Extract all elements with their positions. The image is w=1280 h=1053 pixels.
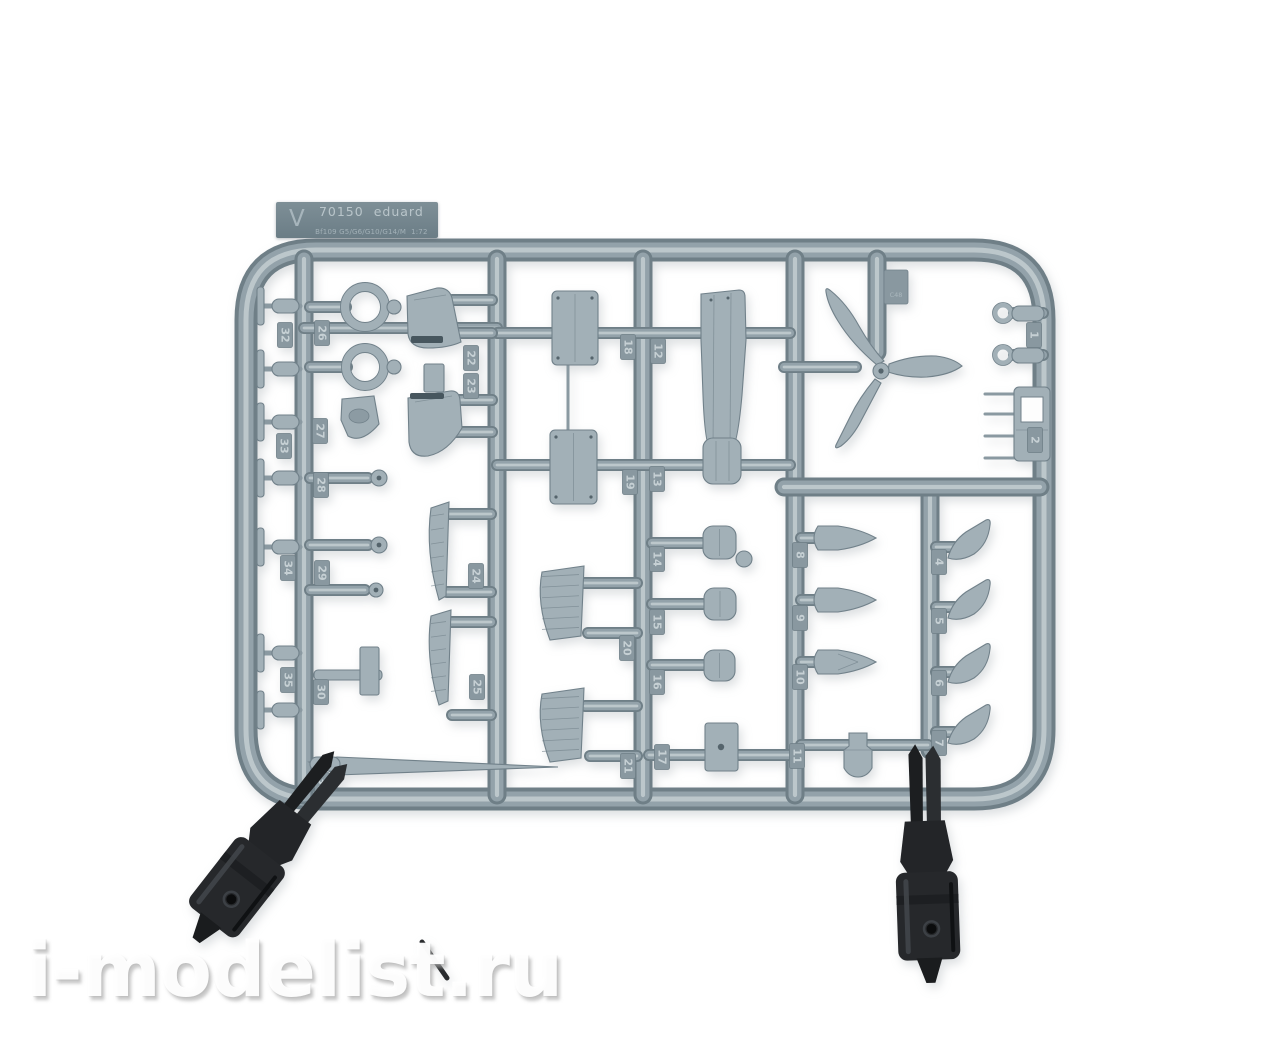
svg-text:35: 35 [282, 672, 295, 687]
brand-name: eduard [374, 204, 424, 219]
svg-text:6: 6 [933, 679, 946, 687]
part-number-tag: 33 [277, 434, 292, 459]
svg-text:9: 9 [794, 614, 807, 622]
part-number-tag: 8 [793, 543, 808, 568]
part-number-tag: 23 [464, 374, 479, 399]
svg-text:18: 18 [622, 339, 635, 354]
clip-right [891, 743, 961, 984]
part-number-tag: 34 [281, 556, 296, 581]
part-number-tag: 27 [313, 419, 328, 444]
part-number-tag: 16 [650, 670, 665, 695]
svg-text:19: 19 [624, 474, 637, 489]
part-number-tag: 4 [932, 550, 947, 575]
svg-text:21: 21 [622, 758, 635, 773]
part-mast-body [272, 362, 299, 376]
part-loop-body [1012, 348, 1044, 363]
part-number-tag: 22 [464, 346, 479, 371]
svg-text:30: 30 [315, 684, 328, 700]
svg-text:26: 26 [316, 325, 329, 341]
propeller-blade [888, 356, 962, 377]
part-loop [995, 305, 1011, 321]
sprue-label: V 70150eduard Bf109 G5/G6/G10/G14/M1:72 [276, 202, 438, 238]
sprue-label-text: 70150eduard Bf109 G5/G6/G10/G14/M1:72 [313, 202, 438, 239]
part-ball-end [387, 360, 401, 374]
part-cowl [701, 290, 746, 453]
svg-text:16: 16 [651, 674, 664, 690]
part-mast-body [272, 471, 299, 485]
part-number-tag: 20 [620, 636, 635, 661]
part-mast-body [272, 646, 299, 660]
part-mast-head [257, 403, 264, 441]
sprue: C483226273328342935303122232425181219131… [0, 0, 1280, 1053]
svg-text:4: 4 [933, 558, 946, 566]
svg-text:5: 5 [933, 617, 946, 625]
svg-text:23: 23 [465, 378, 478, 393]
part-spinner [814, 526, 876, 550]
part-slat [429, 610, 451, 705]
part-number-tag: 24 [469, 564, 484, 589]
part-mast-head [257, 350, 264, 388]
part-number-tag: 32 [278, 323, 293, 348]
part-spinner [814, 588, 876, 612]
part-number-tag: 21 [621, 754, 636, 779]
part-number-tag: 25 [470, 675, 485, 700]
svg-text:24: 24 [470, 568, 483, 584]
product-photo: C483226273328342935303122232425181219131… [0, 0, 1280, 1053]
svg-text:10: 10 [794, 669, 807, 685]
part-scoop [948, 705, 990, 745]
svg-text:15: 15 [651, 614, 664, 629]
part-step [360, 647, 379, 695]
part-loop [995, 347, 1011, 363]
svg-text:13: 13 [651, 471, 664, 486]
svg-text:25: 25 [471, 679, 484, 694]
svg-text:14: 14 [651, 551, 664, 567]
part-number-tag: 9 [793, 606, 808, 631]
part-fin [408, 391, 462, 456]
svg-text:8: 8 [794, 551, 807, 559]
part-number-tag: 6 [932, 671, 947, 696]
part-number-tag: 19 [623, 470, 638, 495]
part-number-tag: 17 [655, 745, 670, 770]
part-number-tag: 28 [314, 473, 329, 498]
svg-text:29: 29 [316, 565, 329, 580]
kit-variant: Bf109 G5/G6/G10/G14/M [315, 228, 406, 236]
svg-text:22: 22 [465, 350, 478, 365]
svg-text:7: 7 [933, 739, 946, 747]
part-mast-body [272, 299, 299, 313]
part-mast-head [257, 459, 264, 497]
part-mast-body [272, 415, 299, 429]
part-number-tag: 13 [650, 467, 665, 492]
part-number-tag: 26 [315, 321, 330, 346]
part-scoop [948, 644, 990, 684]
part-number-tag: 18 [621, 335, 636, 360]
mold-tab-text: C48 [890, 291, 903, 299]
kit-number: 70150 [319, 204, 364, 219]
label-line-1: 70150eduard [319, 204, 424, 219]
part-insert [424, 364, 444, 392]
watermark: i-modelist.ru [26, 932, 562, 1008]
svg-text:2: 2 [1029, 436, 1042, 444]
part-drum [703, 438, 741, 484]
part-mast-head [257, 634, 264, 672]
part-number-tag: 5 [932, 609, 947, 634]
svg-text:32: 32 [279, 327, 292, 342]
svg-text:12: 12 [652, 343, 665, 358]
svg-text:17: 17 [656, 749, 669, 764]
part-ball-end [736, 551, 752, 567]
svg-text:33: 33 [278, 438, 291, 453]
part-number-tag: 35 [281, 668, 296, 693]
part-number-tag: 11 [790, 744, 805, 769]
part-scoop [948, 580, 990, 620]
part-slat [429, 502, 449, 600]
part-number-tag: 1 [1027, 323, 1042, 348]
svg-text:1: 1 [1028, 331, 1041, 339]
svg-text:11: 11 [791, 748, 804, 763]
part-number-tag: 14 [650, 547, 665, 572]
part-number-tag: 29 [315, 561, 330, 586]
part-mast-head [257, 691, 264, 729]
part-number-tag: 12 [651, 339, 666, 364]
svg-text:34: 34 [282, 560, 295, 576]
part-number-tag: 30 [314, 680, 329, 705]
part-spinner [814, 650, 876, 674]
kit-scale: 1:72 [411, 228, 428, 236]
part-mast-head [257, 528, 264, 566]
part-number-tag: 10 [793, 665, 808, 690]
part-scoop [948, 520, 990, 560]
svg-text:20: 20 [621, 640, 634, 656]
part-number-tag: 2 [1028, 428, 1043, 453]
part-mast-head [257, 287, 264, 325]
part-ball-end [387, 300, 401, 314]
sprue-letter: V [276, 206, 313, 234]
part-number-tag: 15 [650, 610, 665, 635]
propeller-blade [836, 379, 881, 448]
part-mast-body [272, 540, 299, 554]
part-mast-body [272, 703, 299, 717]
part-loop-body [1012, 306, 1044, 321]
label-line-2: Bf109 G5/G6/G10/G14/M1:72 [315, 228, 427, 236]
svg-text:27: 27 [314, 423, 327, 438]
svg-text:28: 28 [315, 477, 328, 492]
